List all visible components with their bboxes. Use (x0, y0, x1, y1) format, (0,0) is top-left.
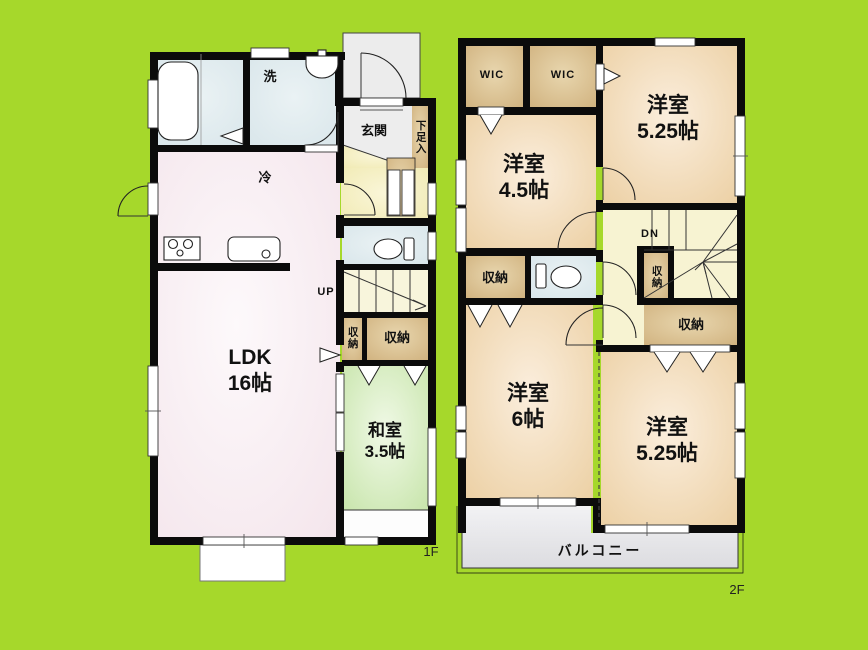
genkan-label: 玄関 (361, 123, 387, 139)
washitsu-label: 和室3.5帖 (365, 420, 406, 463)
floor1-tag: 1F (423, 544, 438, 560)
storage-large-label: 収納 (384, 330, 410, 346)
stairs-up-label: UP (317, 286, 334, 300)
storage-small-label: 収納 (345, 327, 358, 350)
balcony-label: バルコニー (558, 542, 643, 560)
bedroom-left-label: 洋室4.5帖 (499, 152, 549, 205)
floorplan-canvas: 洗 冷 玄関 下足入 UP 収納 収納 LDK16帖 和室3.5帖 1F WIC… (0, 0, 868, 650)
storage-right-2f-label: 収納 (678, 317, 704, 333)
shoe-cabinet-label: 下足入 (413, 120, 426, 155)
labels-layer: 洗 冷 玄関 下足入 UP 収納 収納 LDK16帖 和室3.5帖 1F WIC… (0, 0, 868, 650)
bedroom-bottom-right-label: 洋室5.25帖 (636, 415, 698, 468)
ldk-label: LDK16帖 (228, 345, 272, 398)
bedroom-bottom-left-label: 洋室6帖 (507, 381, 549, 434)
storage-left-2f-label: 収納 (482, 270, 508, 286)
stairs-dn-label: DN (641, 228, 659, 242)
fridge-label: 冷 (258, 170, 271, 186)
wic-right-label: WIC (551, 69, 575, 83)
bedroom-top-label: 洋室5.25帖 (637, 93, 699, 146)
wic-left-label: WIC (480, 69, 504, 83)
laundry-label: 洗 (263, 69, 276, 85)
storage-mid-2f-label: 収納 (649, 266, 662, 289)
floor2-tag: 2F (729, 582, 744, 598)
